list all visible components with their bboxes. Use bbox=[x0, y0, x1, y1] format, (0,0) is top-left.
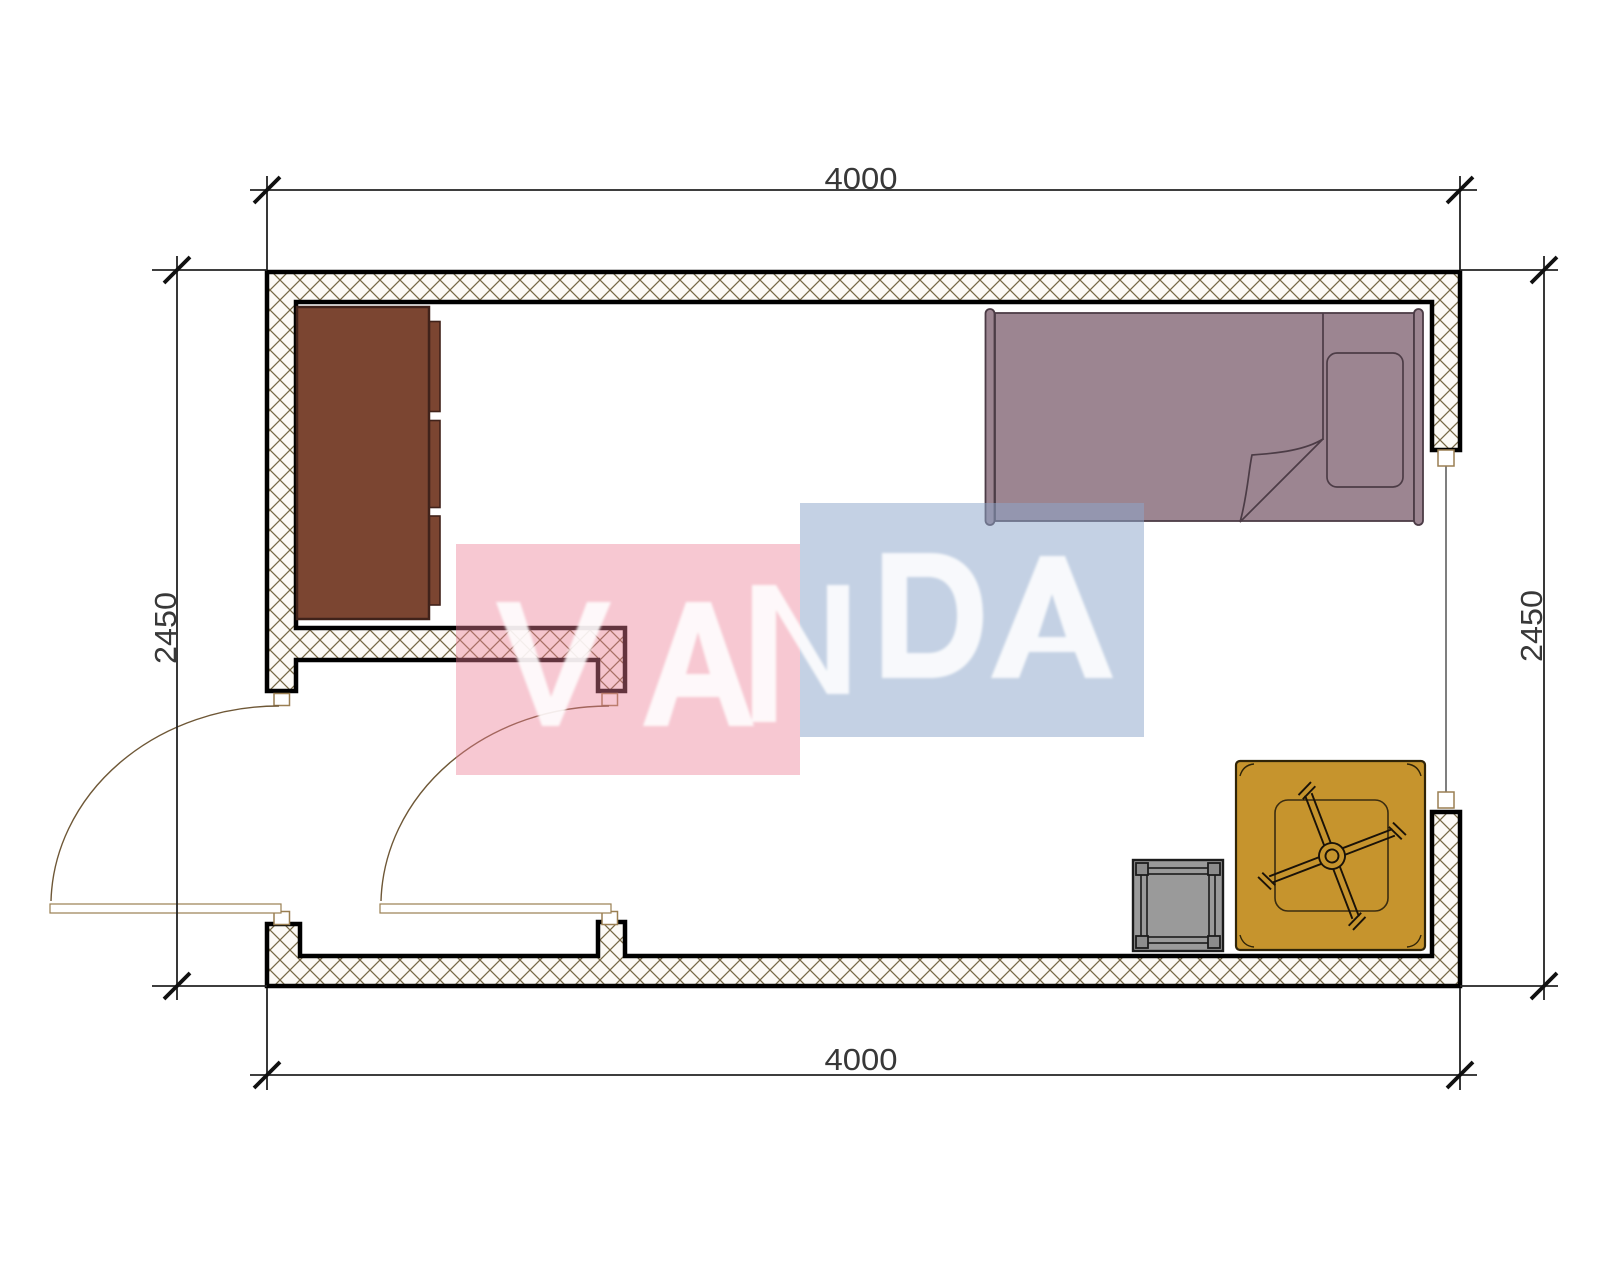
svg-text:2450: 2450 bbox=[148, 592, 183, 664]
svg-text:4000: 4000 bbox=[825, 161, 898, 196]
svg-text:2450: 2450 bbox=[1514, 590, 1549, 662]
svg-text:4000: 4000 bbox=[825, 1042, 898, 1077]
